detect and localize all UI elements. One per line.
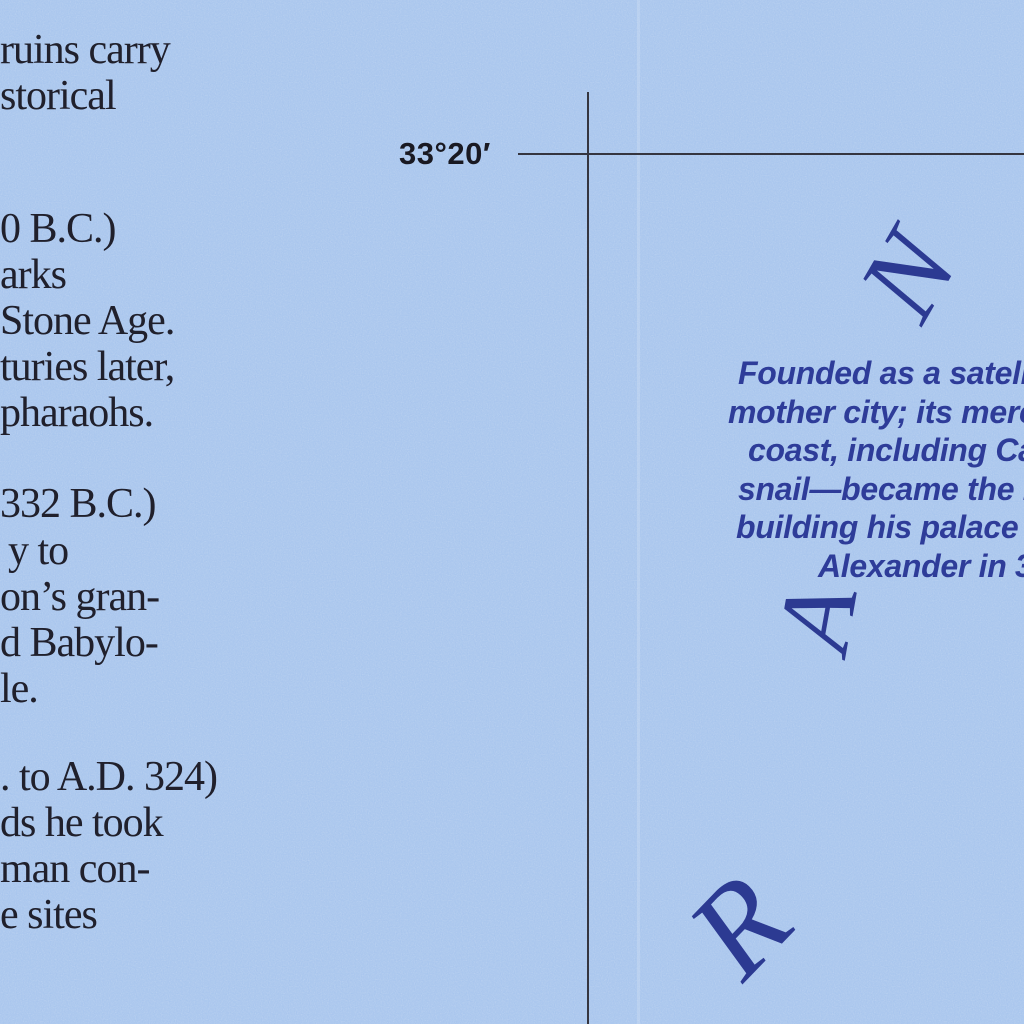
map-note-line: 332 B.C.) [0,481,156,527]
map-note-line: le. [0,666,38,712]
map-note-line: on’s gran- [0,574,159,620]
sea-name-letter-r: R [666,853,812,998]
map-note-line: y to [8,528,68,574]
sea-annotation-line: coast, including Ca [748,431,1024,470]
latitude-label: 33°20′ [399,138,491,169]
sea-annotation-line: Founded as a satellit [738,354,1024,393]
parallel-line [518,153,1024,155]
map-note-line: storical [0,73,116,119]
sea-annotation-line: Alexander in 3 [818,547,1024,586]
sea-annotation-line: mother city; its merc [728,393,1024,432]
map-note-line: e sites [0,892,97,938]
map-note-line: d Babylo- [0,620,158,666]
sea-name-letter-n: N [840,214,977,337]
sea-annotation-line: building his palace a [736,508,1024,547]
sea-name-letter-a: A [761,578,874,659]
map-note-line: arks [0,252,66,298]
map-note-line: pharaohs. [0,390,153,436]
sea-annotation-line: snail—became the m [738,470,1024,509]
map-note-line: Stone Age. [0,298,174,344]
map-note-line: ruins carry [0,27,170,73]
map-note-line: 0 B.C.) [0,206,116,252]
map-note-line: turies later, [0,344,174,390]
map-note-line: man con- [0,846,149,892]
map-canvas: 33°20′ ruins carry storical 0 B.C.) arks… [0,0,1024,1024]
meridian-line [587,92,589,1024]
map-note-line: . to A.D. 324) [0,754,217,800]
map-note-line: ds he took [0,800,163,846]
